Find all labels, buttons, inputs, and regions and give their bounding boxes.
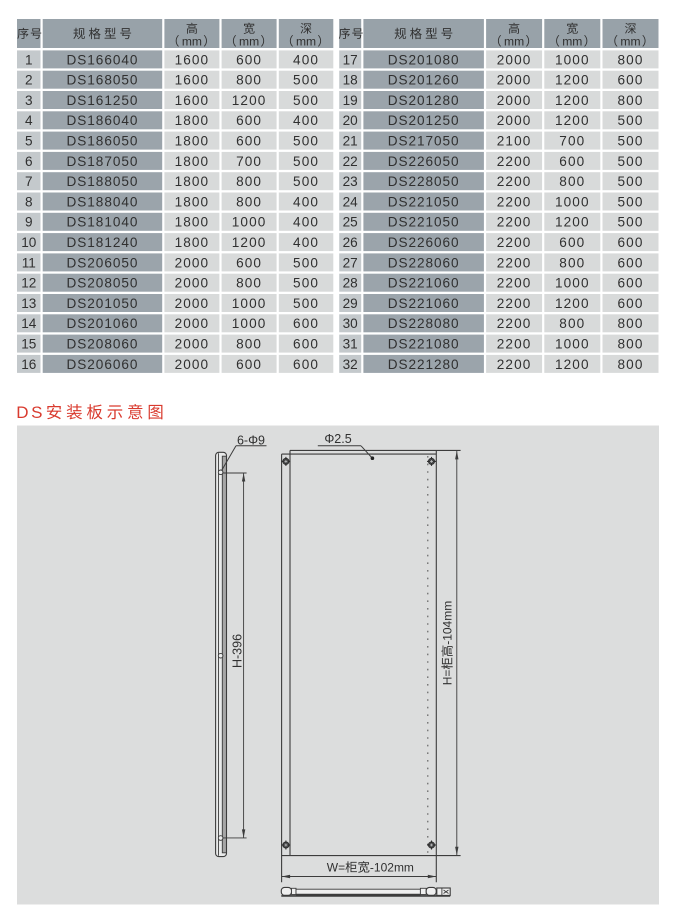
svg-text:32: 32 <box>343 357 358 372</box>
svg-text:600: 600 <box>236 357 262 372</box>
svg-text:28: 28 <box>343 276 358 291</box>
svg-text:DS201080: DS201080 <box>388 52 460 67</box>
svg-text:DS221050: DS221050 <box>388 215 460 230</box>
svg-text:2000: 2000 <box>497 73 532 88</box>
svg-text:DS201060: DS201060 <box>67 316 139 331</box>
svg-text:400: 400 <box>293 113 319 128</box>
svg-text:DS186050: DS186050 <box>67 133 139 148</box>
svg-text:800: 800 <box>559 174 585 189</box>
svg-text:800: 800 <box>618 357 644 372</box>
svg-text:26: 26 <box>343 235 358 250</box>
svg-text:500: 500 <box>293 133 319 148</box>
svg-text:1000: 1000 <box>555 52 590 67</box>
svg-text:DS: DS <box>16 403 45 422</box>
svg-text:DS161250: DS161250 <box>67 93 139 108</box>
svg-text:400: 400 <box>293 215 319 230</box>
svg-text:600: 600 <box>293 357 319 372</box>
svg-text:DS206050: DS206050 <box>67 255 139 270</box>
svg-text:mm: mm <box>239 34 259 48</box>
svg-text:DS221280: DS221280 <box>388 357 460 372</box>
svg-text:5: 5 <box>25 133 33 148</box>
svg-text:1800: 1800 <box>175 113 210 128</box>
svg-text:2200: 2200 <box>497 276 532 291</box>
svg-text:DS228060: DS228060 <box>388 255 460 270</box>
svg-text:600: 600 <box>618 276 644 291</box>
svg-text:DS181240: DS181240 <box>67 235 139 250</box>
svg-text:DS201280: DS201280 <box>388 93 460 108</box>
svg-text:1000: 1000 <box>555 194 590 209</box>
svg-text:1200: 1200 <box>555 296 590 311</box>
svg-text:800: 800 <box>236 194 262 209</box>
svg-text:1200: 1200 <box>555 113 590 128</box>
svg-text:DS166040: DS166040 <box>67 52 139 67</box>
svg-text:800: 800 <box>559 255 585 270</box>
svg-text:11: 11 <box>22 255 36 270</box>
svg-text:1000: 1000 <box>555 336 590 351</box>
svg-text:1800: 1800 <box>175 194 210 209</box>
svg-text:600: 600 <box>236 113 262 128</box>
svg-text:1800: 1800 <box>175 154 210 169</box>
svg-text:2200: 2200 <box>497 336 532 351</box>
svg-text:DS226060: DS226060 <box>388 235 460 250</box>
svg-text:22: 22 <box>343 154 358 169</box>
svg-text:-104mm: -104mm <box>441 601 455 645</box>
svg-text:500: 500 <box>293 154 319 169</box>
svg-text:DS181040: DS181040 <box>67 215 139 230</box>
svg-text:6: 6 <box>25 154 33 169</box>
svg-text:600: 600 <box>293 336 319 351</box>
svg-text:600: 600 <box>236 255 262 270</box>
svg-text:DS168050: DS168050 <box>67 73 139 88</box>
svg-text:17: 17 <box>343 52 358 67</box>
svg-text:DS221060: DS221060 <box>388 296 460 311</box>
svg-text:500: 500 <box>293 93 319 108</box>
svg-text:1000: 1000 <box>232 316 267 331</box>
svg-text:2000: 2000 <box>175 276 210 291</box>
svg-text:500: 500 <box>618 113 644 128</box>
svg-text:DS208050: DS208050 <box>67 276 139 291</box>
svg-text:DS201050: DS201050 <box>67 296 139 311</box>
svg-text:2200: 2200 <box>497 154 532 169</box>
svg-text:800: 800 <box>236 336 262 351</box>
svg-text:DS188040: DS188040 <box>67 194 139 209</box>
svg-text:DS186040: DS186040 <box>67 113 139 128</box>
svg-text:2000: 2000 <box>175 336 210 351</box>
svg-text:1600: 1600 <box>175 73 210 88</box>
svg-text:2200: 2200 <box>497 215 532 230</box>
svg-text:2200: 2200 <box>497 357 532 372</box>
svg-text:500: 500 <box>618 174 644 189</box>
svg-text:7: 7 <box>25 174 33 189</box>
svg-text:13: 13 <box>21 296 36 311</box>
svg-text:H-396: H-396 <box>231 634 245 668</box>
svg-text:2: 2 <box>25 73 33 88</box>
svg-text:1000: 1000 <box>232 215 267 230</box>
svg-text:-102mm: -102mm <box>370 861 414 875</box>
svg-text:DS228080: DS228080 <box>388 316 460 331</box>
svg-text:DS228050: DS228050 <box>388 174 460 189</box>
svg-text:1000: 1000 <box>555 276 590 291</box>
svg-text:25: 25 <box>343 215 358 230</box>
svg-text:500: 500 <box>618 215 644 230</box>
svg-text:1000: 1000 <box>232 296 267 311</box>
svg-text:600: 600 <box>618 255 644 270</box>
svg-text:600: 600 <box>236 133 262 148</box>
svg-text:2200: 2200 <box>497 235 532 250</box>
svg-text:mm: mm <box>182 34 202 48</box>
svg-text:DS188050: DS188050 <box>67 174 139 189</box>
svg-text:12: 12 <box>21 276 36 291</box>
svg-text:DS221080: DS221080 <box>388 336 460 351</box>
svg-text:1200: 1200 <box>555 93 590 108</box>
svg-text:800: 800 <box>236 73 262 88</box>
svg-text:DS217050: DS217050 <box>388 133 460 148</box>
svg-text:400: 400 <box>293 52 319 67</box>
svg-text:400: 400 <box>293 194 319 209</box>
svg-text:2000: 2000 <box>497 93 532 108</box>
svg-text:800: 800 <box>618 52 644 67</box>
svg-text:1800: 1800 <box>175 133 210 148</box>
svg-text:2100: 2100 <box>497 133 532 148</box>
svg-text:DS206060: DS206060 <box>67 357 139 372</box>
svg-text:DS201250: DS201250 <box>388 113 460 128</box>
svg-text:500: 500 <box>618 133 644 148</box>
svg-text:600: 600 <box>559 154 585 169</box>
svg-text:Φ2.5: Φ2.5 <box>324 432 351 446</box>
svg-text:DS221060: DS221060 <box>388 276 460 291</box>
svg-text:2200: 2200 <box>497 296 532 311</box>
svg-text:1800: 1800 <box>175 174 210 189</box>
svg-text:27: 27 <box>343 255 358 270</box>
svg-text:600: 600 <box>236 52 262 67</box>
svg-text:2000: 2000 <box>175 296 210 311</box>
svg-text:1200: 1200 <box>555 357 590 372</box>
svg-text:800: 800 <box>559 316 585 331</box>
svg-text:500: 500 <box>293 174 319 189</box>
svg-text:8: 8 <box>25 194 33 209</box>
svg-text:2000: 2000 <box>497 113 532 128</box>
svg-text:2000: 2000 <box>497 52 532 67</box>
svg-text:1: 1 <box>25 52 33 67</box>
svg-text:23: 23 <box>343 174 358 189</box>
svg-text:15: 15 <box>21 336 36 351</box>
svg-text:29: 29 <box>343 296 358 311</box>
svg-text:1200: 1200 <box>555 215 590 230</box>
svg-text:mm: mm <box>620 34 640 48</box>
svg-text:DS187050: DS187050 <box>67 154 139 169</box>
svg-text:600: 600 <box>618 73 644 88</box>
svg-text:mm: mm <box>504 34 524 48</box>
svg-text:DS226050: DS226050 <box>388 154 460 169</box>
svg-text:DS221050: DS221050 <box>388 194 460 209</box>
svg-text:mm: mm <box>562 34 582 48</box>
svg-text:1200: 1200 <box>232 93 267 108</box>
svg-text:19: 19 <box>343 93 358 108</box>
svg-text:800: 800 <box>236 276 262 291</box>
svg-text:24: 24 <box>343 194 359 209</box>
svg-text:500: 500 <box>293 276 319 291</box>
svg-text:500: 500 <box>293 255 319 270</box>
svg-text:800: 800 <box>618 93 644 108</box>
svg-text:700: 700 <box>236 154 262 169</box>
svg-text:1800: 1800 <box>175 235 210 250</box>
svg-text:21: 21 <box>343 133 358 148</box>
svg-text:30: 30 <box>343 316 359 331</box>
svg-text:600: 600 <box>559 235 585 250</box>
svg-text:16: 16 <box>21 357 36 372</box>
svg-text:1200: 1200 <box>232 235 267 250</box>
svg-text:2200: 2200 <box>497 194 532 209</box>
svg-text:DS201260: DS201260 <box>388 73 460 88</box>
svg-text:9: 9 <box>25 215 33 230</box>
svg-text:500: 500 <box>618 154 644 169</box>
svg-text:500: 500 <box>618 194 644 209</box>
svg-text:mm: mm <box>296 34 316 48</box>
svg-text:500: 500 <box>293 296 319 311</box>
svg-text:3: 3 <box>25 93 33 108</box>
svg-text:1600: 1600 <box>175 93 210 108</box>
svg-text:1600: 1600 <box>175 52 210 67</box>
svg-text:500: 500 <box>293 73 319 88</box>
svg-text:400: 400 <box>293 235 319 250</box>
svg-text:600: 600 <box>618 235 644 250</box>
svg-text:800: 800 <box>618 316 644 331</box>
svg-text:600: 600 <box>293 316 319 331</box>
svg-text:2000: 2000 <box>175 255 210 270</box>
svg-text:2200: 2200 <box>497 255 532 270</box>
svg-text:10: 10 <box>21 235 37 250</box>
svg-text:800: 800 <box>236 174 262 189</box>
svg-text:H=: H= <box>441 670 455 686</box>
svg-text:18: 18 <box>343 73 358 88</box>
svg-text:20: 20 <box>343 113 359 128</box>
svg-text:2200: 2200 <box>497 316 532 331</box>
svg-text:600: 600 <box>618 296 644 311</box>
svg-text:4: 4 <box>25 113 33 128</box>
svg-text:2000: 2000 <box>175 316 210 331</box>
svg-text:W=: W= <box>327 861 345 875</box>
svg-text:1200: 1200 <box>555 73 590 88</box>
svg-text:31: 31 <box>343 336 358 351</box>
svg-text:2000: 2000 <box>175 357 210 372</box>
svg-text:DS208060: DS208060 <box>67 336 139 351</box>
svg-text:14: 14 <box>21 316 37 331</box>
svg-text:1800: 1800 <box>175 215 210 230</box>
svg-text:2200: 2200 <box>497 174 532 189</box>
svg-text:700: 700 <box>559 133 585 148</box>
svg-text:800: 800 <box>618 336 644 351</box>
